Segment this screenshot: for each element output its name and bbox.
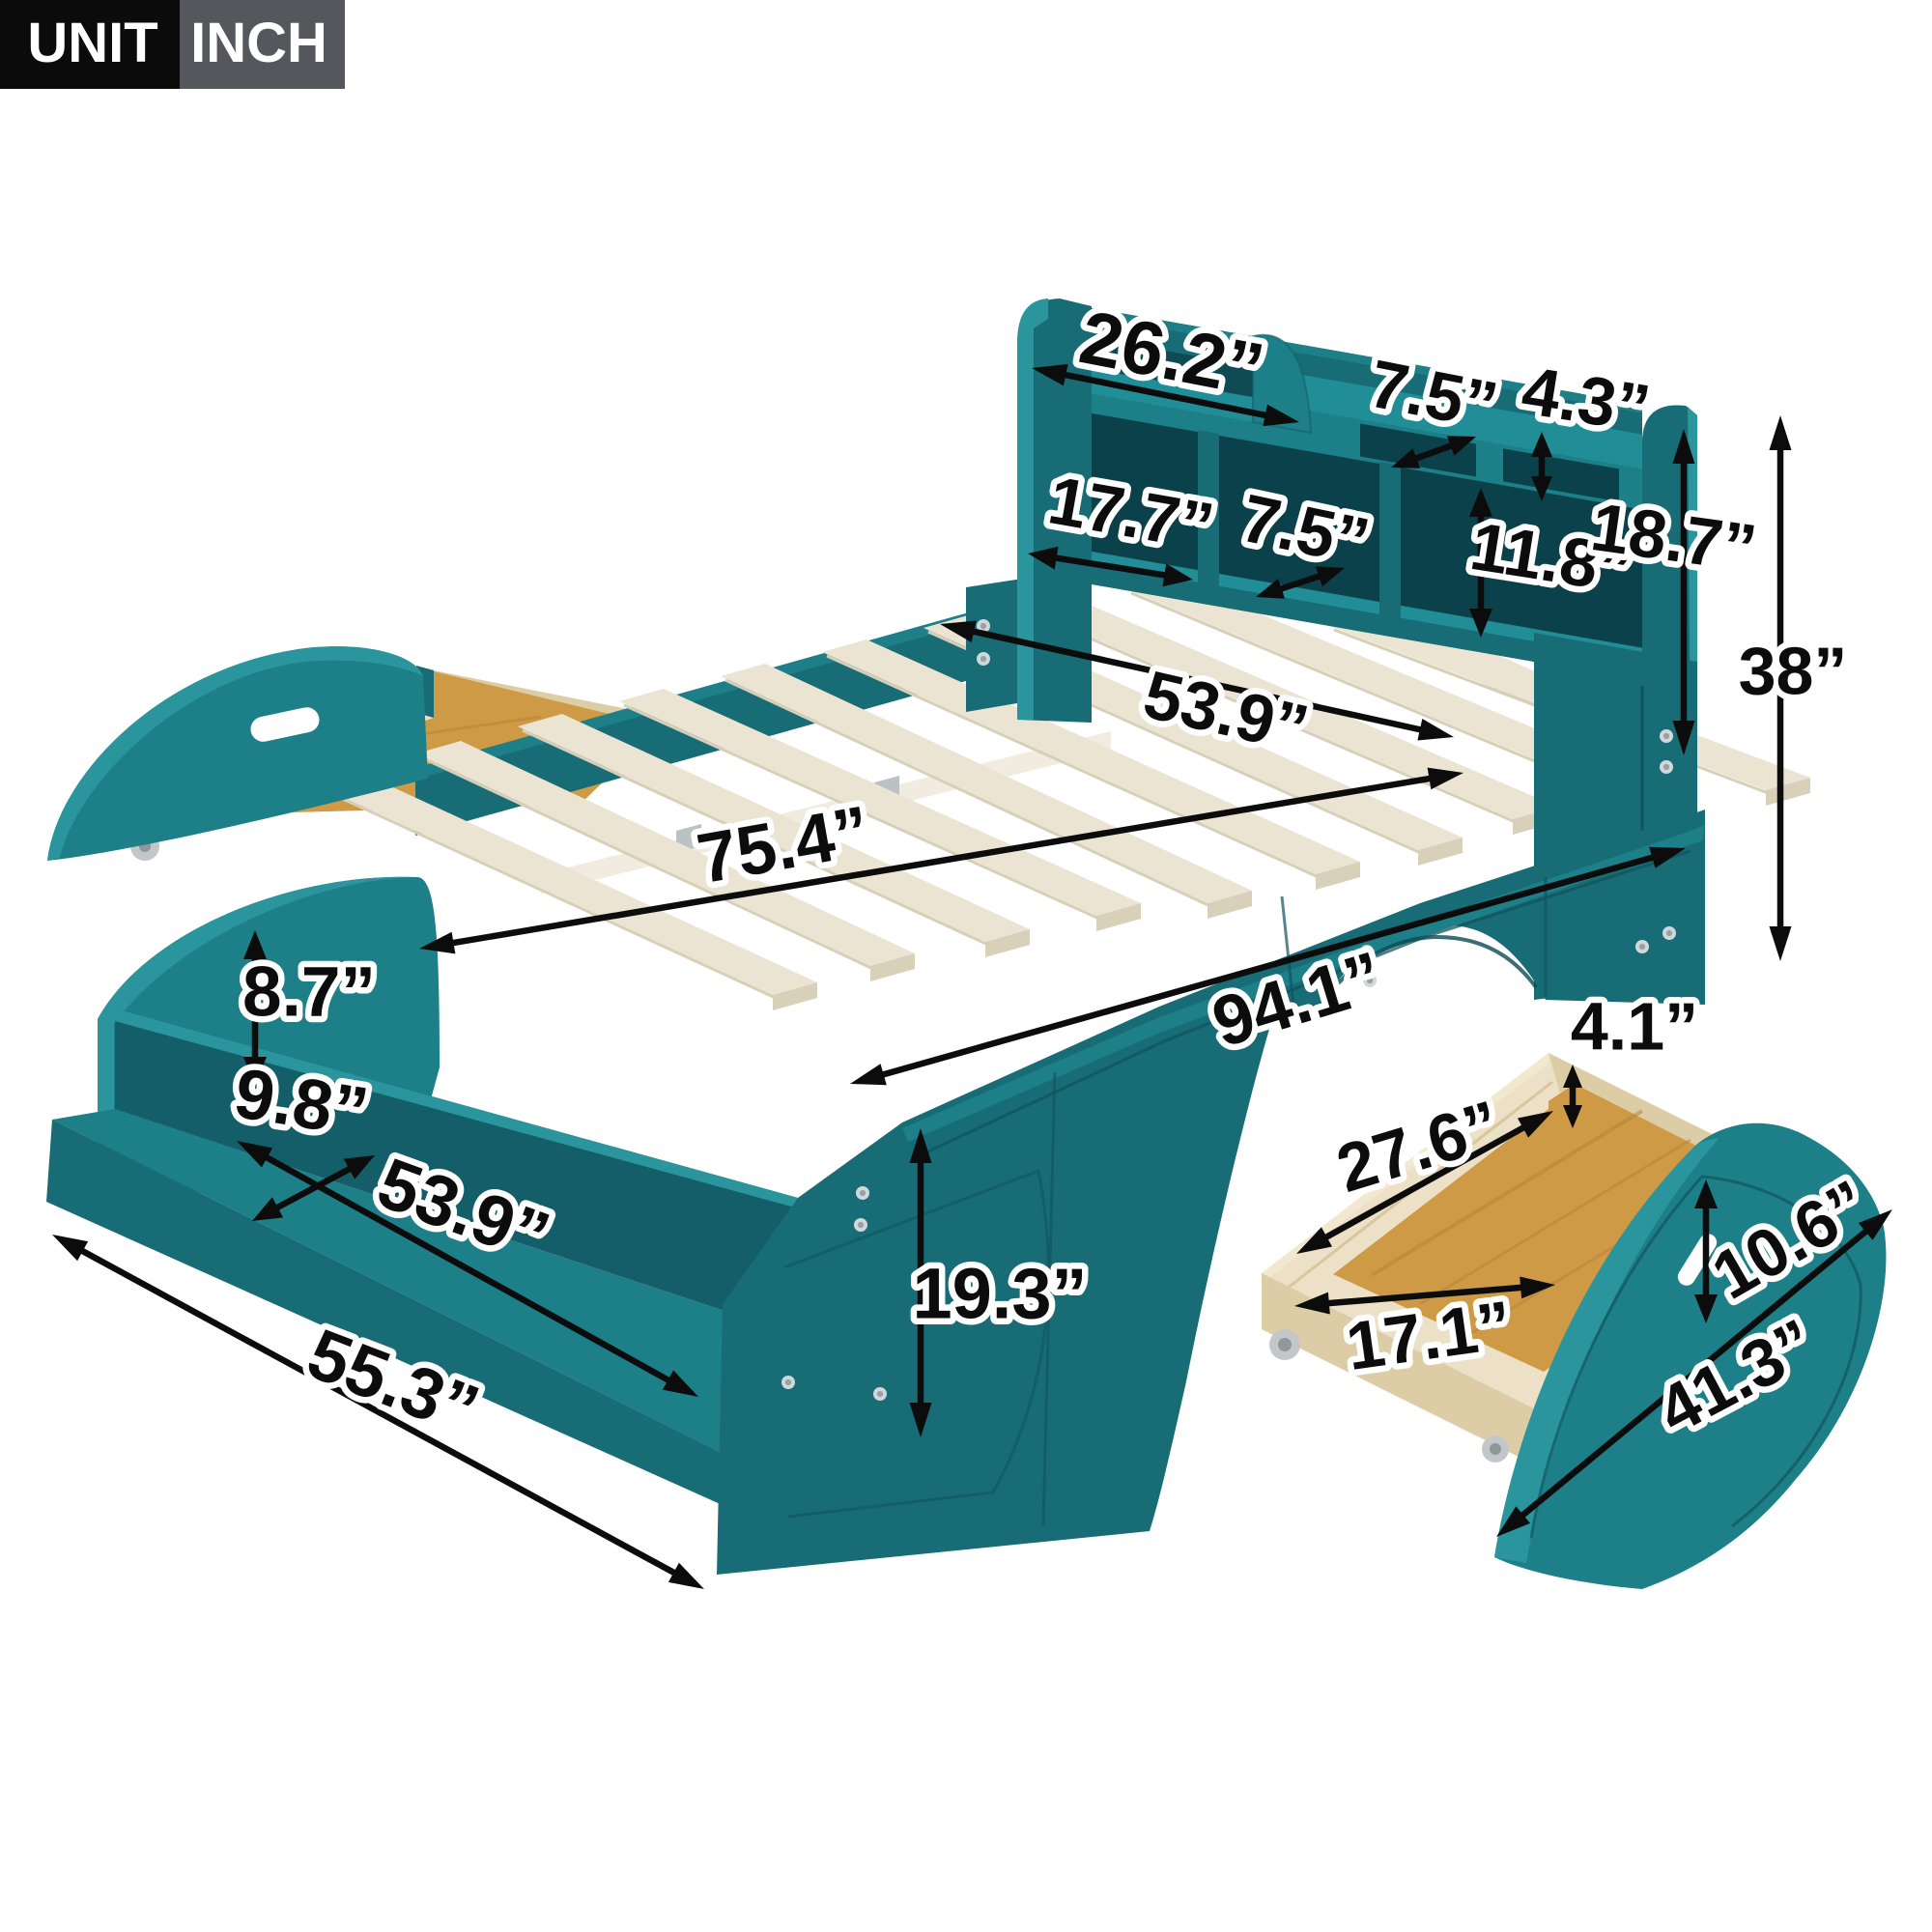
svg-text:38”: 38” [1739,633,1848,708]
svg-text:8.7”: 8.7” [242,952,376,1031]
svg-text:UNIT: UNIT [27,12,157,74]
svg-text:19.3”: 19.3” [912,1254,1087,1334]
svg-text:INCH: INCH [190,12,327,74]
svg-text:4.1”: 4.1” [1571,988,1698,1064]
